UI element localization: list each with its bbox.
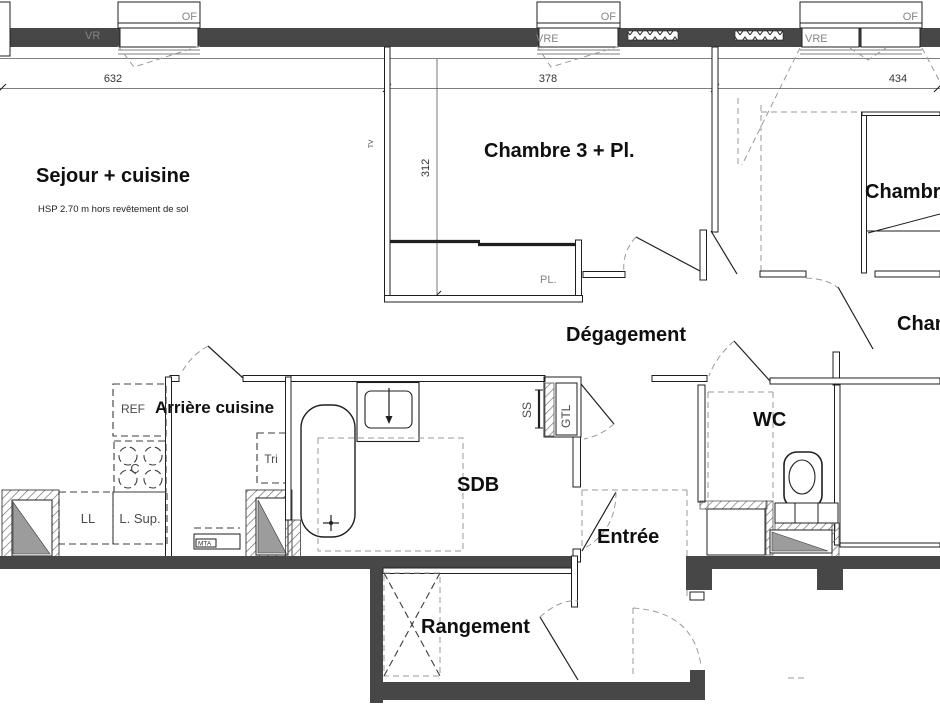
tv-outlet-label: TV bbox=[368, 139, 375, 148]
bathtub bbox=[301, 405, 355, 537]
room-label-chambre-sud-est: Chambre bbox=[897, 313, 940, 335]
floor-plan: OF VR OF VRE OF VRE bbox=[0, 0, 940, 705]
room-label-sdb: SDB bbox=[457, 474, 499, 496]
room-label-chambre-est: Chambre bbox=[865, 181, 940, 203]
radiator-mta: MTA bbox=[194, 528, 240, 549]
washer-sup-label: L. Sup. bbox=[119, 511, 160, 526]
window-type-label: OF bbox=[182, 11, 198, 23]
washer: LL bbox=[59, 492, 113, 544]
room-label-rangement: Rangement bbox=[421, 616, 530, 638]
window-type-label: OF bbox=[601, 11, 617, 23]
washbasin bbox=[357, 383, 419, 442]
towel-dryer: SS bbox=[520, 390, 543, 428]
ceiling-height-note: HSP 2.70 m hors revêtement de sol bbox=[38, 204, 188, 215]
mta-label: MTA bbox=[198, 541, 212, 548]
wc-platform bbox=[700, 501, 839, 557]
dim-378: 378 bbox=[539, 73, 557, 85]
dim-434: 434 bbox=[889, 73, 907, 85]
gtl-label: GTL bbox=[559, 404, 573, 428]
exterior-wall-top: OF VR OF VRE OF VRE bbox=[0, 2, 940, 168]
gtl-duct: GTL bbox=[544, 377, 581, 437]
washer-label: LL bbox=[81, 511, 95, 526]
room-sejour: Sejour + cuisine HSP 2.70 m hors revêtem… bbox=[36, 165, 190, 215]
cooktop: C bbox=[114, 441, 166, 492]
window-chambre-est: OF bbox=[738, 2, 940, 168]
tri-bin: Tri bbox=[257, 433, 287, 483]
room-label-wc: WC bbox=[753, 409, 786, 431]
placard-label: PL. bbox=[540, 274, 557, 286]
window-sejour: OF bbox=[118, 2, 200, 67]
ss-label: SS bbox=[520, 402, 534, 418]
room-rangement: Rangement bbox=[383, 556, 701, 680]
room-label-entree: Entrée bbox=[597, 526, 659, 548]
floor-plan-drawing: OF VR OF VRE OF VRE bbox=[0, 0, 940, 705]
window-partial-left bbox=[0, 2, 10, 56]
dim-632: 632 bbox=[104, 73, 122, 85]
room-sdb: SS GTL SDB bbox=[286, 377, 615, 557]
column-left bbox=[2, 490, 59, 558]
dim-312: 312 bbox=[420, 159, 432, 177]
shutter-vre-label: VRE bbox=[536, 33, 559, 45]
cooktop-label: C bbox=[130, 461, 139, 476]
shutter-vr-label: VR bbox=[85, 30, 100, 42]
window-type-label: OF bbox=[903, 11, 919, 23]
ref-label: REF bbox=[121, 402, 145, 416]
room-label-chambre3: Chambre 3 + Pl. bbox=[484, 140, 635, 162]
entry-door-swing bbox=[633, 608, 701, 678]
dimension-line-top: 632 378 434 bbox=[0, 73, 940, 92]
room-chambre-sud-est: Chambre bbox=[760, 271, 940, 385]
room-label-degagement: Dégagement bbox=[566, 324, 686, 346]
room-label-arriere-cuisine: Arrière cuisine bbox=[155, 398, 274, 417]
room-entree: Entrée bbox=[573, 490, 687, 600]
tri-label: Tri bbox=[264, 452, 278, 466]
washer-sup: L. Sup. bbox=[113, 492, 167, 544]
room-label-sejour: Sejour + cuisine bbox=[36, 165, 190, 187]
toilet bbox=[784, 452, 822, 508]
room-chambre3: 312 TV PL. Chambre 3 + Pl. bbox=[368, 47, 700, 302]
shutter-vre-label: VRE bbox=[805, 33, 828, 45]
